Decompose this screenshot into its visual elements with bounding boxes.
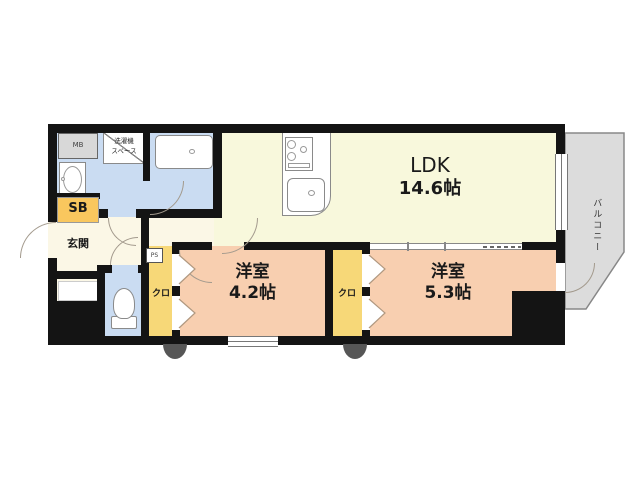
- pillar-bump-right: [343, 344, 367, 359]
- entrance-step: [58, 281, 98, 301]
- washbasin-bowl: [63, 166, 82, 193]
- entrance-door-arc: [20, 222, 56, 258]
- wall-hall-closet1: [141, 215, 149, 337]
- bathtub-drain: [189, 149, 195, 154]
- wall-outer-left-upper: [48, 124, 57, 222]
- wall-closet2-bedroom2-a: [362, 242, 370, 254]
- partition-tick-2: [444, 242, 446, 251]
- bedroom2-size: 5.3帖: [378, 283, 518, 304]
- wall-outer-top: [48, 124, 565, 133]
- bedroom2-name: 洋室: [378, 262, 518, 283]
- bathtub: [155, 135, 213, 169]
- wall-outer-bottom: [48, 336, 565, 345]
- floorplan-canvas: MB 洗濯機 スペース: [0, 0, 640, 480]
- washer-space-line2: スペース: [111, 147, 136, 155]
- bedroom1-label: 洋室 4.2帖: [190, 262, 315, 305]
- pipe-space-label: PS: [146, 252, 163, 260]
- bedroom1-size: 4.2帖: [190, 283, 315, 304]
- partition-dashes: [483, 246, 521, 248]
- sink-faucet: [308, 190, 315, 196]
- wall-partition-right: [522, 242, 565, 250]
- ldk-size: 14.6帖: [350, 178, 510, 201]
- balcony-label: バルコニー: [590, 185, 601, 265]
- stove-grill: [288, 163, 310, 168]
- window-bedroom1: [228, 336, 278, 347]
- wall-bedroom1-top-a: [172, 242, 212, 250]
- closet1-label: クロ: [146, 289, 176, 300]
- washbasin-faucet: [61, 177, 65, 181]
- bedroom1-name: 洋室: [190, 262, 315, 283]
- wall-toilet-left: [97, 265, 105, 337]
- wall-washroom-ldk: [213, 124, 222, 218]
- balcony-door-gap: [556, 263, 565, 291]
- ldk-name: LDK: [350, 153, 510, 178]
- wall-outer-right-1: [556, 124, 565, 154]
- entrance-label: 玄関: [54, 237, 102, 251]
- window-ldk-balcony: [555, 154, 568, 230]
- toilet-bowl: [113, 288, 135, 319]
- wall-toilet-top-a: [105, 265, 112, 273]
- closet2-label: クロ: [330, 289, 364, 300]
- shoe-box-label: SB: [57, 201, 99, 217]
- wall-closet1-bedroom1-c: [172, 330, 180, 337]
- partition-tick-1: [407, 242, 409, 251]
- stove-burner-3: [300, 146, 307, 153]
- washer-space-label: 洗濯機 スペース: [103, 136, 145, 157]
- wall-closet2-bedroom2-c: [362, 330, 370, 337]
- pillar-bump-left: [163, 344, 187, 359]
- kitchen-sink: [287, 178, 325, 212]
- wall-bedroom1-top-b: [244, 242, 330, 250]
- meter-box-label: MB: [58, 141, 98, 150]
- bedroom2-label: 洋室 5.3帖: [378, 262, 518, 305]
- washer-space-line1: 洗濯機: [114, 137, 134, 145]
- wall-washroom-bathroom: [143, 131, 150, 181]
- wall-corner-block-se: [512, 291, 565, 337]
- stove-burner-2: [287, 152, 296, 161]
- stove-burner-1: [287, 140, 296, 149]
- ldk-label: LDK 14.6帖: [350, 153, 510, 201]
